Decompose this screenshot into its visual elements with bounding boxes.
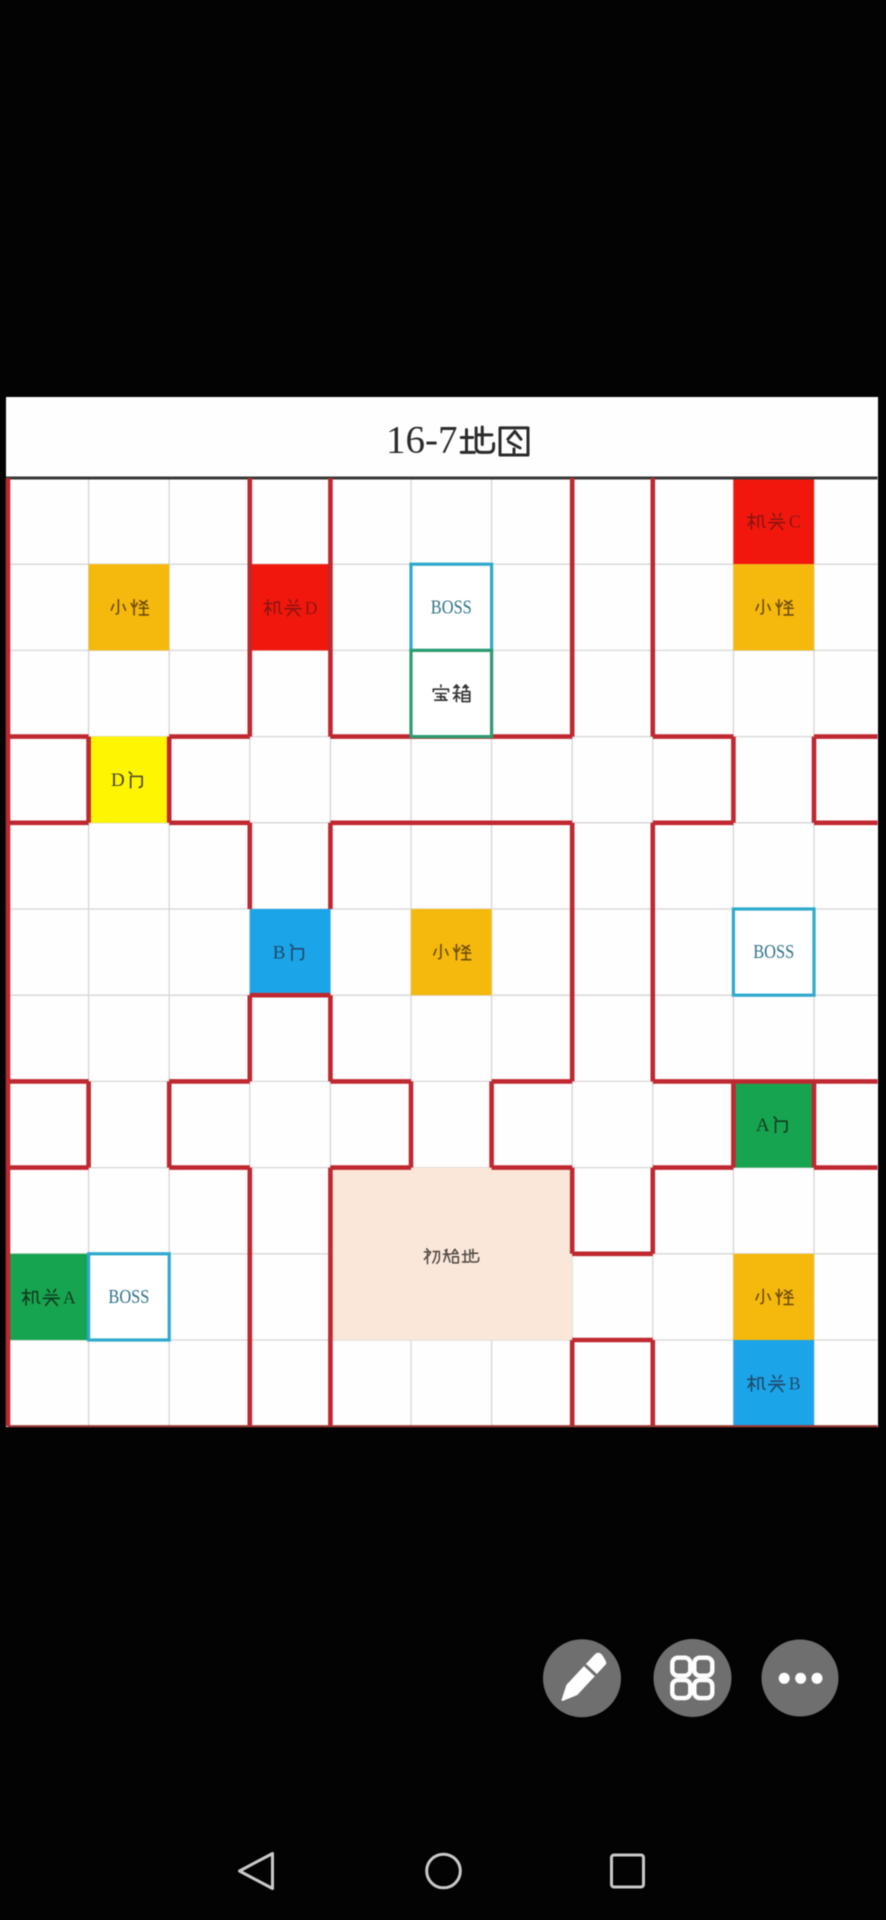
svg-text:16-7: 16-7 [386, 419, 458, 462]
svg-text:A: A [63, 1287, 76, 1307]
svg-text:B: B [273, 943, 286, 964]
svg-text:D: D [305, 598, 318, 618]
svg-text:B: B [789, 1374, 801, 1394]
svg-text:BOSS: BOSS [753, 941, 794, 963]
svg-text:D: D [111, 770, 125, 791]
svg-text:BOSS: BOSS [108, 1286, 149, 1308]
svg-text:BOSS: BOSS [431, 596, 472, 618]
svg-text:A: A [756, 1115, 770, 1136]
svg-text:C: C [789, 512, 801, 532]
